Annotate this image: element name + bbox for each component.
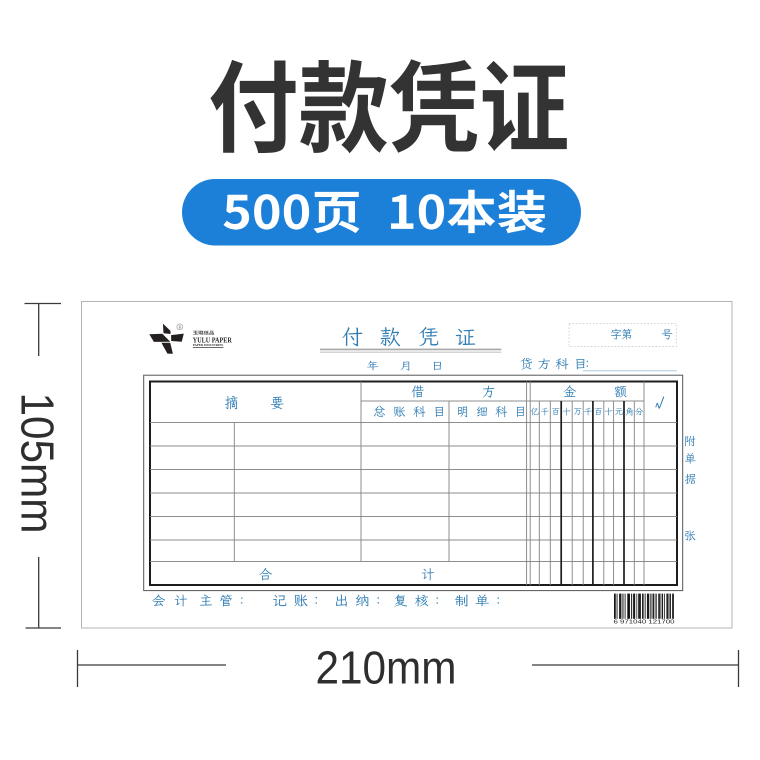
svg-text:PAPER INDUSTRIES: PAPER INDUSTRIES	[193, 343, 224, 347]
svg-text:105mm: 105mm	[12, 393, 64, 534]
svg-text:R: R	[178, 325, 181, 330]
svg-text:6 971040 121700: 6 971040 121700	[614, 620, 675, 626]
svg-text:210mm: 210mm	[316, 642, 457, 694]
